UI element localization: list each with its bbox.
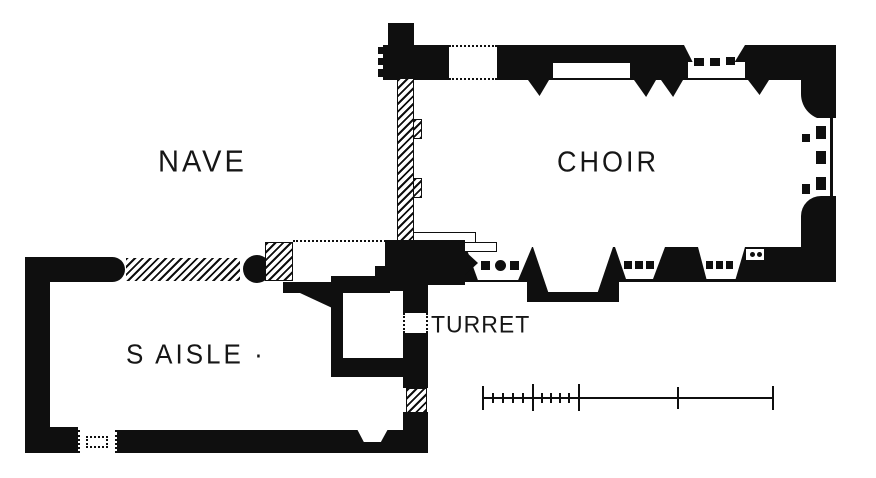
arcade-square-pier-hatched: [265, 242, 293, 281]
scale-major-tick-3: [578, 384, 580, 411]
s-window1-mullion-b: [510, 261, 519, 270]
north-window-mullion-1: [694, 58, 704, 66]
s-window1-shaft-roundel: [495, 260, 506, 271]
turret-east-wall-upper: [403, 285, 428, 313]
aisle-door-leaf-dotted: [86, 436, 108, 448]
floor-plan-canvas: NAVE CHOIR S AISLE · TURRET: [0, 0, 876, 478]
s-aisle-label: S AISLE ·: [126, 338, 266, 371]
scale-major-tick-1: [482, 386, 484, 410]
piscina-drain-2: [757, 252, 762, 257]
scale-minor-tick-5: [541, 393, 543, 403]
scale-bar-line: [482, 397, 773, 399]
aisle-ne-wall-bar: [283, 282, 390, 293]
choir-respond-2: [634, 80, 656, 97]
choir-respond-1: [528, 80, 549, 96]
east-window-mullion-2: [816, 151, 826, 164]
nw-tooth-3: [378, 69, 384, 77]
choir-respond-4: [748, 80, 769, 95]
north-window-mullion-3: [726, 57, 735, 65]
east-window-mullion-3: [816, 177, 826, 190]
choir-north-doorway: [449, 45, 497, 80]
choir-west-wall-hatched: [397, 78, 414, 243]
scale-minor-tick-1: [492, 393, 494, 403]
aisle-west-wall: [25, 257, 50, 453]
scale-minor-tick-3: [512, 393, 514, 403]
s-window1-mullion-a: [481, 261, 490, 270]
nave-label: NAVE: [158, 145, 247, 180]
s-window3-mullion-a: [706, 261, 713, 269]
aisle-east-wall-hatched: [406, 388, 427, 414]
choir-east-wall-upper: [801, 45, 836, 120]
s-window3-mullion-c: [726, 261, 733, 269]
scale-major-tick-2: [532, 384, 534, 411]
piscina-drain-1: [750, 252, 755, 257]
scale-major-tick-4: [677, 387, 679, 409]
s-window2-mullion-b: [635, 261, 643, 269]
turret-label: TURRET: [431, 310, 530, 338]
turret-doorway: [403, 313, 428, 333]
west-wall-tab-1: [413, 119, 422, 139]
outline-footing-b: [464, 242, 497, 252]
turret-east-wall-lower: [403, 333, 428, 388]
east-window-mullion-1: [816, 126, 826, 139]
choir-label: CHOIR: [557, 146, 659, 179]
choir-north-recess: [553, 63, 630, 78]
nw-tooth-2: [378, 58, 384, 65]
east-window-outer-face-line: [830, 118, 833, 198]
aisle-north-wall-hatched: [126, 258, 240, 281]
scale-minor-tick-4: [522, 393, 524, 403]
east-window-jamb-step-2: [802, 184, 810, 194]
s-window3-mullion-b: [716, 261, 723, 269]
turret-south-wall: [331, 358, 403, 377]
scale-minor-tick-7: [559, 393, 561, 403]
s-window2-mullion-c: [646, 261, 654, 269]
nw-tooth-1: [378, 47, 384, 54]
choir-respond-3: [661, 80, 683, 97]
s-window2-mullion-a: [624, 261, 632, 269]
scale-minor-tick-2: [502, 393, 504, 403]
choir-nw-corner-block: [388, 23, 414, 47]
north-window-mullion-2: [710, 58, 720, 66]
aisle-sw-corner-foot: [25, 427, 78, 453]
scale-minor-tick-8: [568, 393, 570, 403]
west-wall-tab-2: [413, 178, 422, 198]
scale-minor-tick-6: [550, 393, 552, 403]
scale-major-tick-5: [772, 386, 774, 410]
east-window-jamb-step-1: [802, 134, 810, 142]
